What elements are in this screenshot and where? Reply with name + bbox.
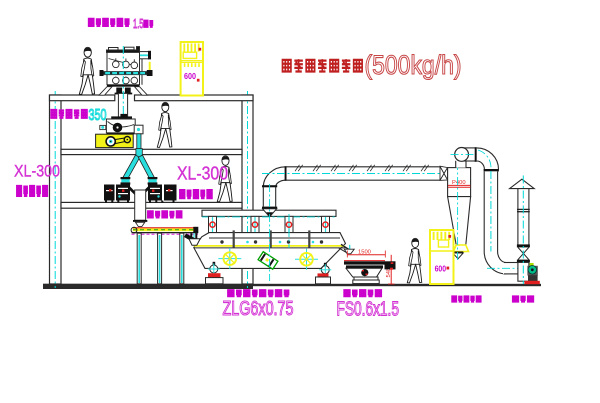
svg-text:600: 600: [184, 71, 196, 81]
svg-text:1500: 1500: [358, 250, 371, 256]
svg-text:350: 350: [89, 107, 107, 124]
svg-text:(500kg/h): (500kg/h): [365, 50, 462, 80]
svg-text:XL-300: XL-300: [14, 161, 60, 180]
svg-text:FS0.6x1.5: FS0.6x1.5: [337, 299, 400, 321]
svg-text:ZLG6x0.75: ZLG6x0.75: [223, 298, 294, 320]
svg-text:1.5: 1.5: [133, 16, 144, 31]
svg-text:600: 600: [435, 264, 447, 274]
svg-text:XL-300: XL-300: [177, 164, 228, 184]
